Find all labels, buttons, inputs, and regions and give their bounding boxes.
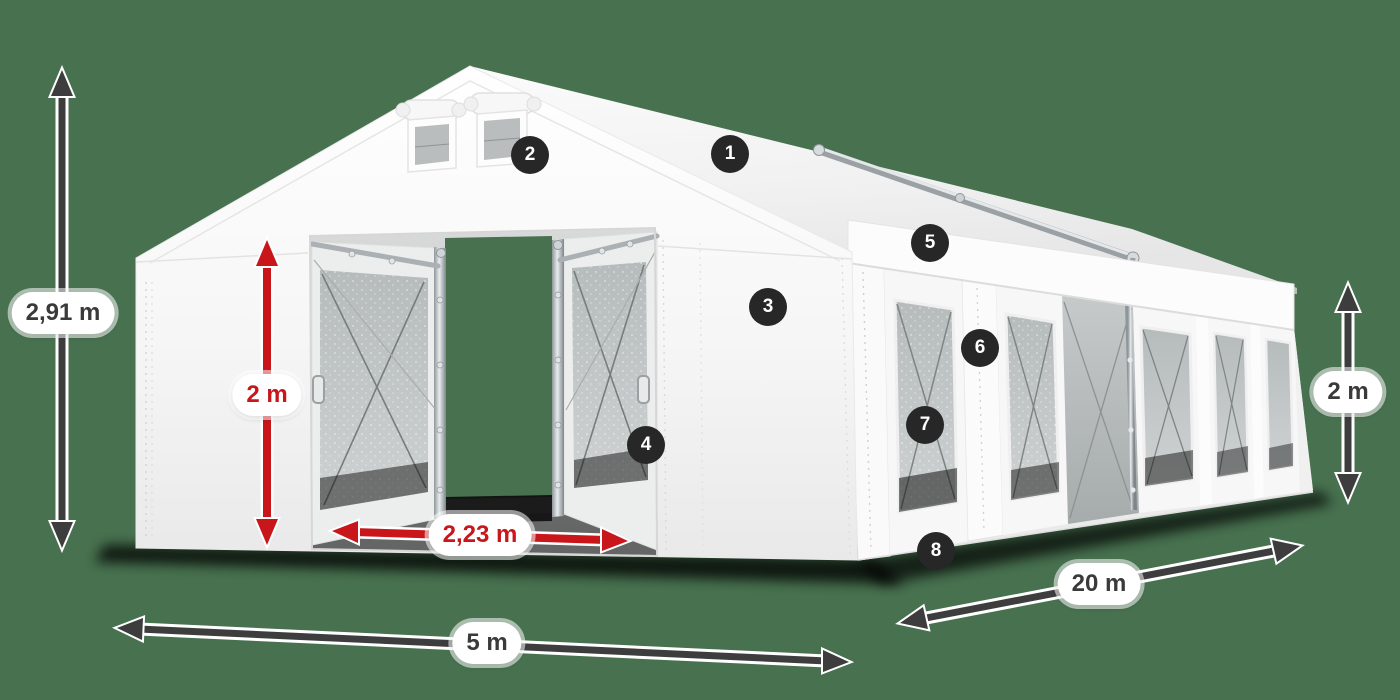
feature-marker-7: 7 <box>906 406 944 444</box>
dimension-label-door-width: 2,23 m <box>429 514 532 556</box>
feature-marker-1: 1 <box>711 135 749 173</box>
feature-marker-6: 6 <box>961 329 999 367</box>
left-door-panel <box>312 242 446 545</box>
feature-marker-3: 3 <box>749 288 787 326</box>
feature-marker-5: 5 <box>911 224 949 262</box>
dimension-label-door-height: 2 m <box>232 374 301 416</box>
door-pole-icon <box>552 239 564 517</box>
feature-marker-2: 2 <box>511 136 549 174</box>
dimension-label-side-length: 20 m <box>1058 563 1141 605</box>
dimension-label-wall-height: 2 m <box>1313 371 1382 413</box>
tent-illustration <box>0 0 1400 700</box>
door-handle-icon <box>638 376 649 403</box>
tent-diagram-canvas: 2,91 m 2 m 2,23 m 5 m 20 m 2 m 1 2 3 4 5… <box>0 0 1400 700</box>
door-gap-passthrough <box>445 236 552 499</box>
dimension-label-front-width: 5 m <box>452 622 521 664</box>
feature-marker-4: 4 <box>627 426 665 464</box>
dimension-label-total-height: 2,91 m <box>12 292 115 334</box>
feature-marker-8: 8 <box>917 532 955 570</box>
door-handle-icon <box>313 376 324 403</box>
front-door-opening <box>310 228 657 556</box>
door-pole-icon <box>434 247 446 520</box>
